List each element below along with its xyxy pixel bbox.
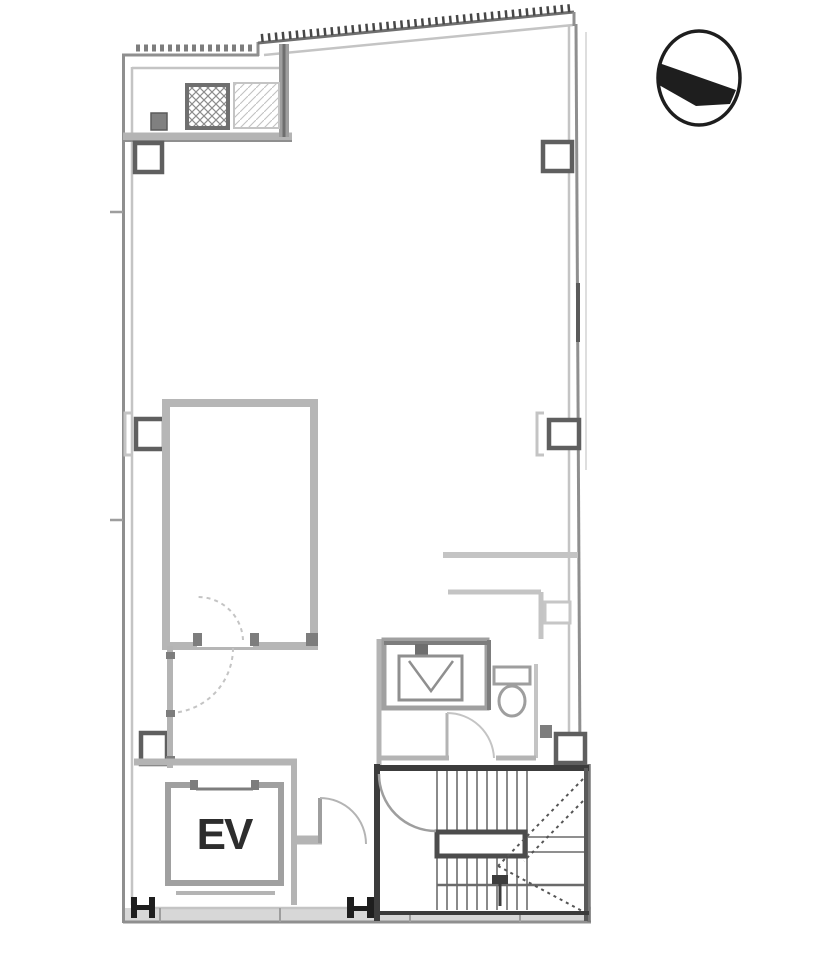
column-bracket-left <box>125 413 131 455</box>
beam-web <box>354 906 367 911</box>
beam-flange <box>149 897 155 918</box>
inner-room-door-opening <box>197 633 253 647</box>
floor-plan-page: EV <box>0 0 839 980</box>
column-bracket-right <box>537 413 544 455</box>
column <box>543 142 572 171</box>
door-jamb <box>190 780 198 790</box>
door-jamb <box>251 780 259 790</box>
wall-corner-tick <box>540 725 552 738</box>
beam-flange <box>367 897 375 918</box>
machine-room <box>123 44 292 141</box>
column <box>136 419 164 449</box>
column <box>549 420 579 448</box>
staircase <box>374 764 589 921</box>
stair-center-rail <box>437 832 525 856</box>
shaft-hatch-dense <box>187 85 228 128</box>
north-arrow-icon <box>658 31 740 125</box>
stair-direction-arrow <box>492 875 508 884</box>
inner-room-walls <box>166 403 314 646</box>
beam-flange <box>131 897 137 918</box>
restroom-partition-entry <box>448 592 541 639</box>
slanted-top-wall-hatching <box>261 8 571 38</box>
left-wall-ticks <box>110 212 123 520</box>
wall-tick <box>166 652 175 659</box>
elevator-lobby: EV <box>131 762 375 918</box>
utility-fixture <box>545 602 570 623</box>
column <box>556 734 585 763</box>
floor-plan-drawing: EV <box>0 0 839 980</box>
inner-room <box>166 403 318 713</box>
wall-corner-tick <box>306 633 318 646</box>
duct-box <box>151 113 167 130</box>
restroom-door-arc <box>447 713 494 758</box>
door-jamb <box>193 633 202 646</box>
corridor <box>166 646 175 768</box>
right-wall-outer-line <box>576 24 580 762</box>
door-swing-arc <box>168 648 233 713</box>
toilet-cistern <box>494 667 530 684</box>
beam-web <box>137 905 149 910</box>
wall-tick <box>166 710 175 717</box>
slanted-top-wall-outer <box>258 12 574 43</box>
beam-flange <box>347 897 354 918</box>
toilet-bowl <box>499 686 525 716</box>
shaft-hatch-light <box>234 83 279 128</box>
door-jamb <box>250 633 259 646</box>
column <box>135 143 162 172</box>
lobby-door-arc <box>320 798 366 844</box>
elevator-label: EV <box>197 810 254 859</box>
restroom <box>379 555 578 766</box>
